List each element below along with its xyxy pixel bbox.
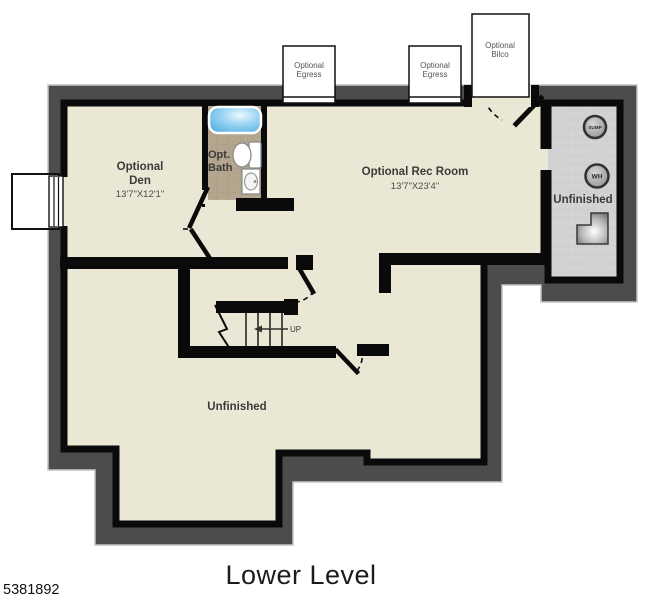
rec-name: Optional Rec Room	[362, 166, 469, 178]
egress1-label-line2: Egress	[297, 70, 322, 79]
bilco-box: Optional Bilco	[472, 14, 529, 97]
photo-id: 5381892	[3, 582, 59, 598]
lower-unfinished-label: Unfinished	[207, 401, 266, 413]
bilco-label-line1: Optional	[485, 41, 515, 50]
egress2-label-line1: Optional	[420, 61, 450, 70]
bath-name-line1: Opt.	[208, 149, 230, 161]
water-heater-label: WH	[592, 174, 603, 181]
den-name-line1: Optional	[117, 161, 164, 173]
den-dims: 13'7"X12'1"	[116, 189, 164, 200]
floor-plan-svg: Opt. Bath UP	[0, 0, 652, 600]
toilet-icon	[233, 142, 261, 168]
bilco-label-line2: Bilco	[491, 50, 509, 59]
floor-plan-page: Opt. Bath UP	[0, 0, 652, 600]
sump-pump-icon: SUMP	[584, 116, 606, 138]
utility-unfinished-label: Unfinished	[553, 194, 612, 206]
window-left	[12, 174, 68, 229]
bath-door-opening	[205, 200, 236, 208]
den-name-line2: Den	[129, 175, 151, 187]
utility-door-opening-inner	[548, 149, 556, 170]
room-bath: Opt. Bath	[200, 103, 264, 208]
rec-dims: 13'7"X23'4"	[391, 181, 439, 192]
page-title: Lower Level	[225, 560, 376, 590]
egress-box-1: Optional Egress	[283, 46, 335, 97]
stairs-up-label: UP	[290, 325, 301, 334]
bathtub-icon	[209, 107, 261, 133]
egress2-label-line2: Egress	[423, 70, 448, 79]
utility-door-opening	[539, 149, 548, 170]
water-heater-icon: WH	[586, 165, 609, 188]
egress1-label-line1: Optional	[294, 61, 324, 70]
egress-box-2: Optional Egress	[409, 46, 461, 97]
sump-label: SUMP	[588, 125, 601, 130]
sink-icon	[242, 169, 260, 194]
bath-name-line2: Bath	[208, 162, 233, 174]
